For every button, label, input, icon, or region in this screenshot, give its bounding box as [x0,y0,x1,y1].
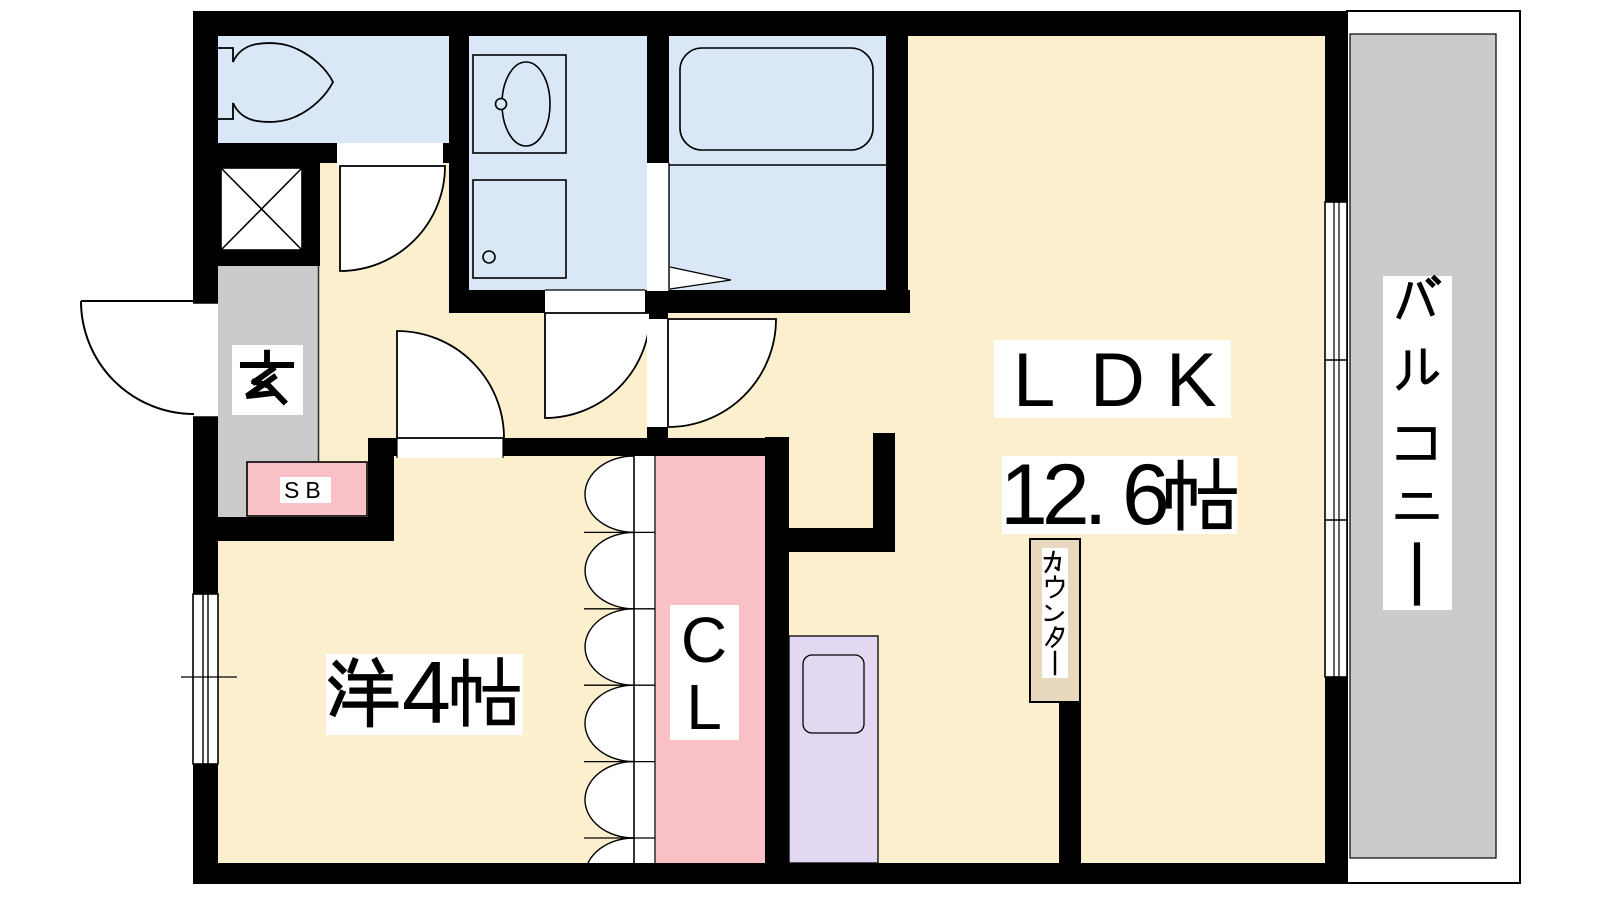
svg-text:4: 4 [402,643,451,742]
svg-text:12.: 12. [1000,447,1102,543]
svg-text:D: D [1090,338,1145,423]
svg-text:L: L [686,671,722,743]
svg-text:C: C [681,604,727,676]
svg-text:SB: SB [284,477,327,503]
svg-text:L: L [1013,338,1055,423]
svg-text:K: K [1166,338,1217,423]
svg-text:6: 6 [1122,447,1170,543]
